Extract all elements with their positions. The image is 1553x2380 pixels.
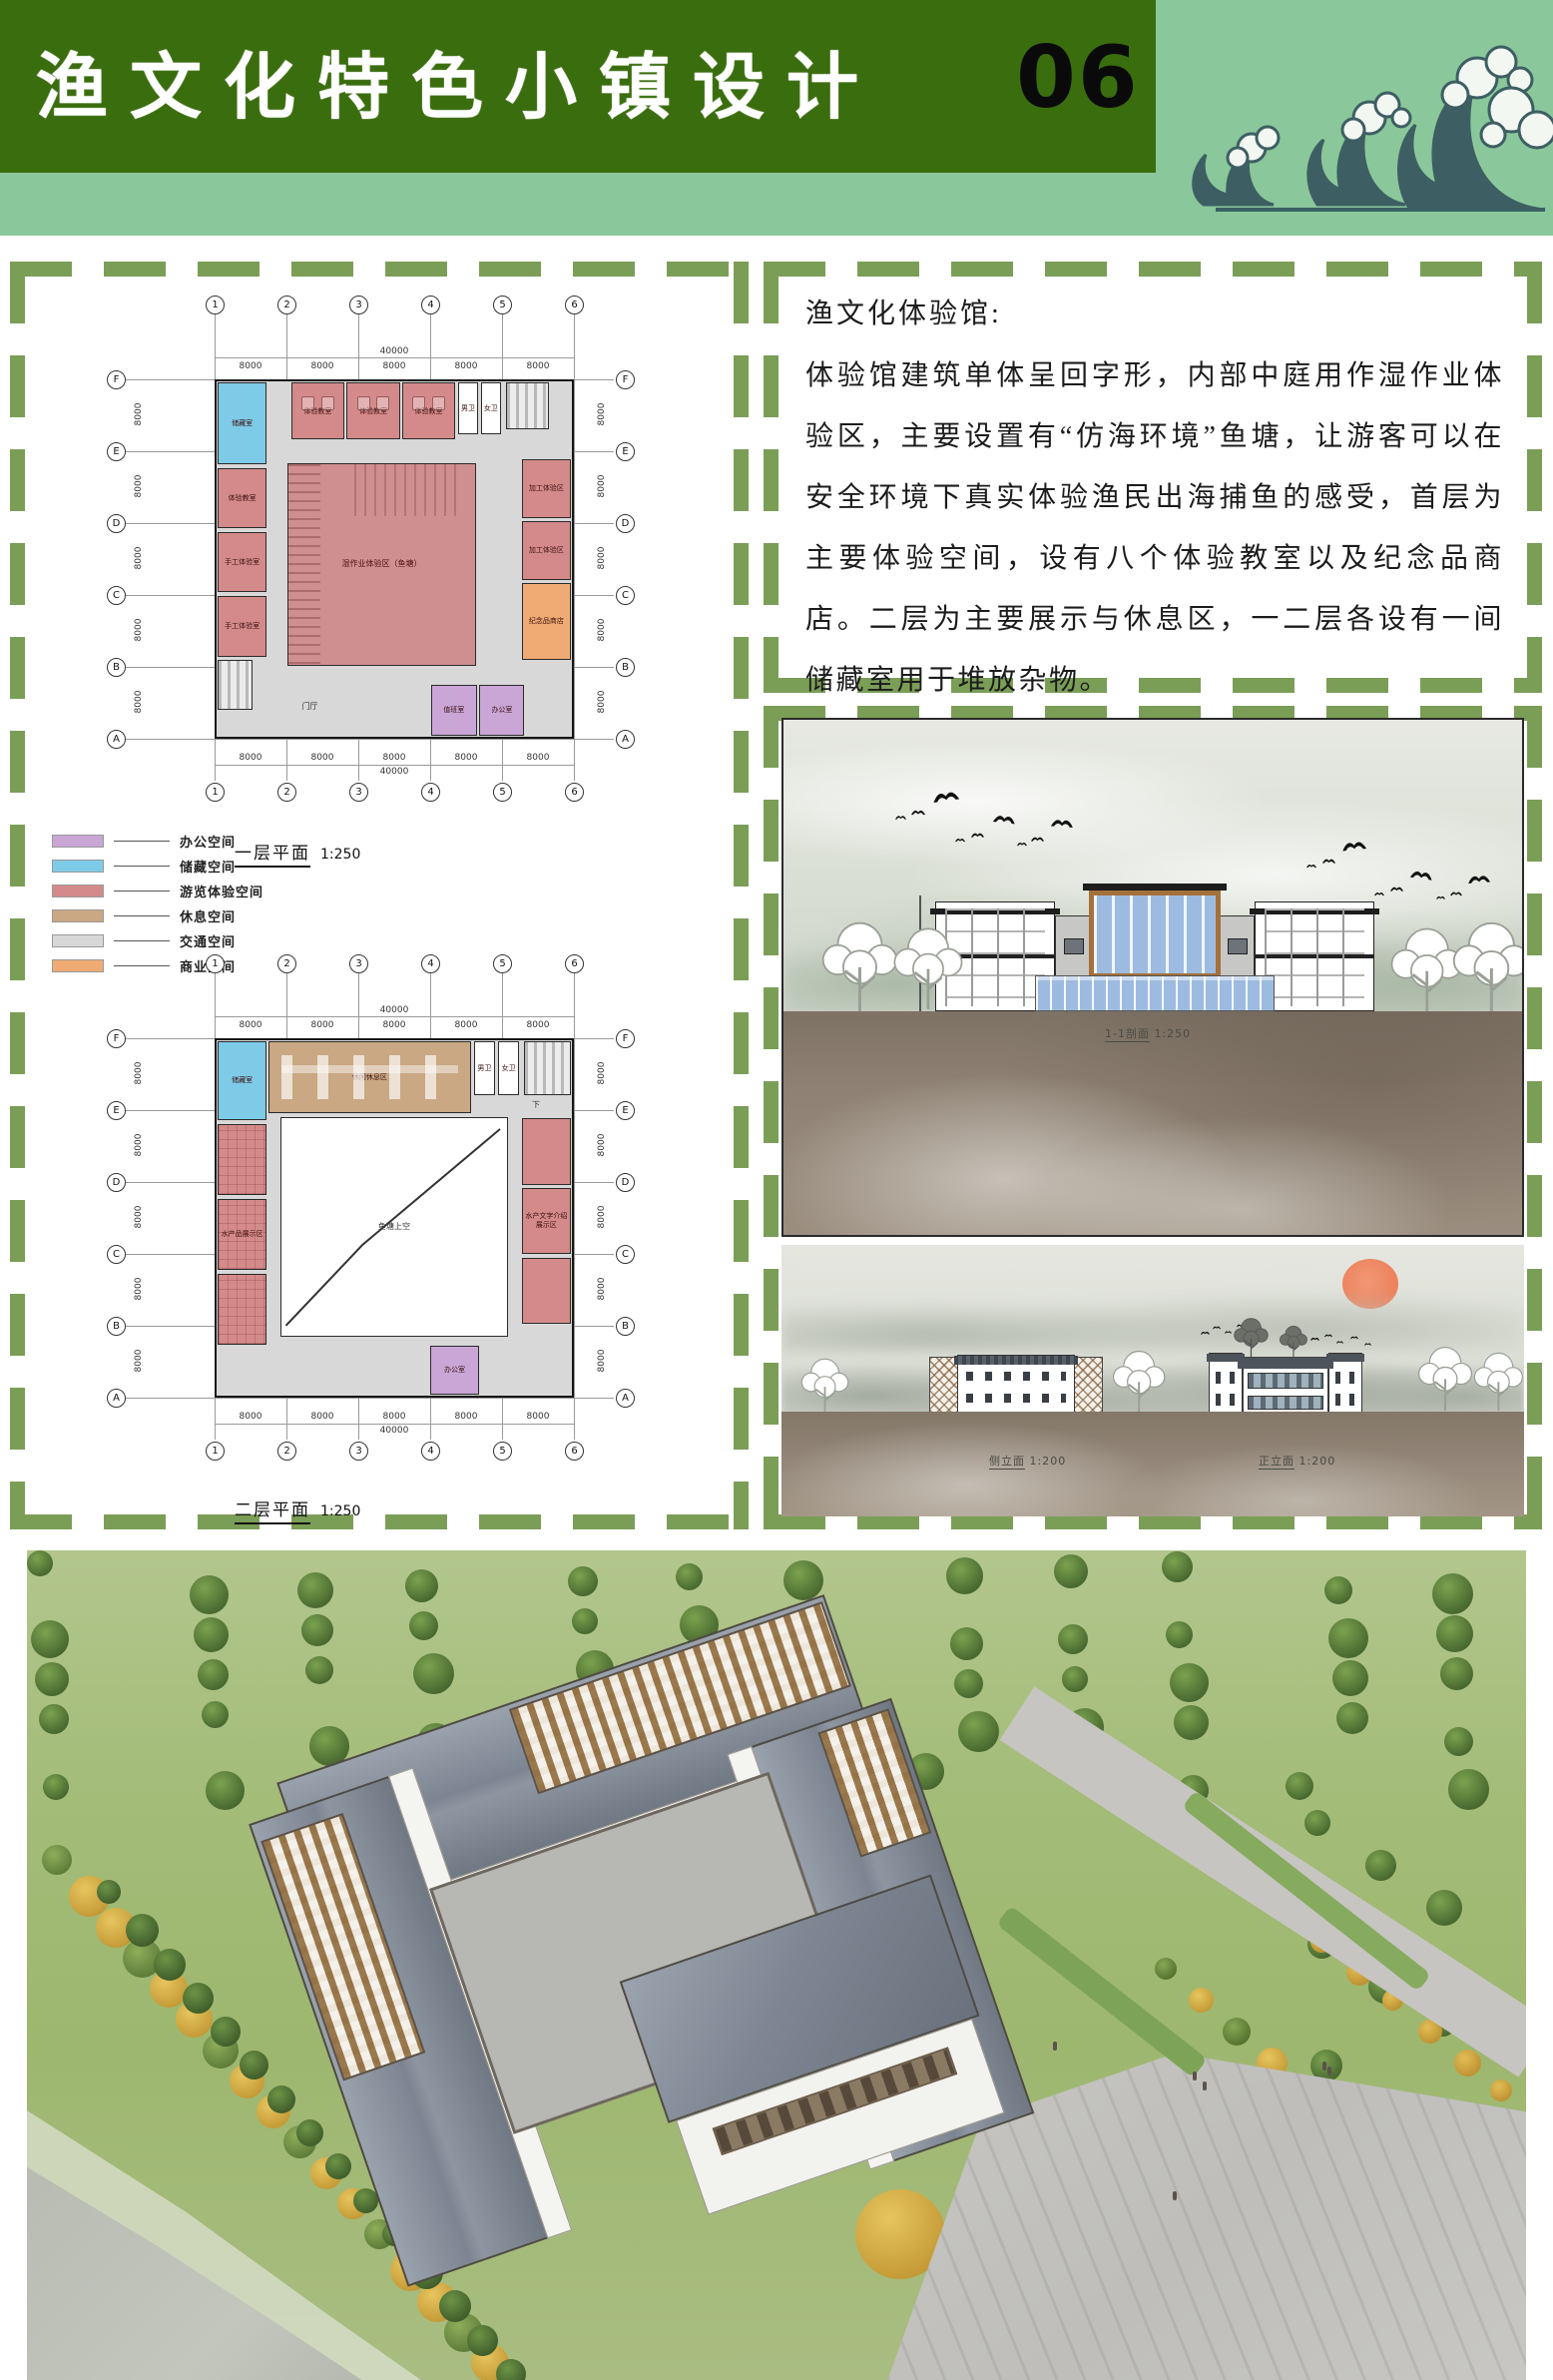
side-elevation-label: 侧立面 1:200: [989, 1453, 1066, 1469]
tree: [1365, 1850, 1396, 1881]
aerial-render: [27, 1550, 1526, 2380]
grid-bubble: 1: [206, 296, 225, 314]
dim-label: 8000: [597, 466, 607, 506]
legend-item: 办公空间: [52, 829, 263, 854]
tree: [676, 1563, 703, 1590]
dim-label: 8000: [134, 1197, 144, 1237]
tree: [1304, 1810, 1330, 1836]
first-floor-plan: 1180008000228000800033800080004480008000…: [65, 284, 684, 823]
second-floor-plan: 1180008000228000800033800080004480008000…: [65, 942, 684, 1482]
plan-room-鱼塘上空: 鱼塘上空: [280, 1117, 508, 1338]
tree: [1426, 1890, 1462, 1926]
legend-line: [114, 940, 170, 941]
plan-room-储藏室: 储藏室: [218, 1041, 265, 1119]
plan-room-男卫: 男卫: [458, 382, 478, 434]
plan-room-tour: [218, 1274, 265, 1345]
tree: [1286, 1772, 1313, 1800]
tree-sketch: [819, 919, 902, 1016]
header-banner: 渔文化特色小镇设计 06: [0, 0, 1156, 173]
dim-label: 8000: [286, 753, 358, 763]
tree: [35, 1662, 69, 1696]
legend-line: [114, 866, 170, 867]
bird-icon: [1322, 852, 1335, 870]
front-elevation-center: [1243, 1357, 1328, 1413]
tree: [1432, 1573, 1473, 1614]
tree: [97, 1880, 121, 1904]
dim-total: 40000: [215, 1005, 574, 1015]
bird-icon: [1324, 1325, 1332, 1343]
panel-border: [764, 1514, 1542, 1529]
tree: [958, 1711, 999, 1752]
bird-icon: [1310, 1329, 1319, 1347]
lower-glazing: [1035, 975, 1275, 1011]
elevation-label-text: 正立面: [1259, 1455, 1294, 1470]
legend-color-chip: [52, 885, 104, 897]
grid-bubble: D: [616, 1173, 635, 1192]
tree: [126, 1914, 159, 1947]
grid-bubble: 4: [421, 783, 440, 802]
room-label: 水产文字介绍展示区: [523, 1212, 569, 1230]
person: [1193, 2072, 1197, 2081]
side-elevation-wall: [957, 1355, 1075, 1413]
person: [1203, 2082, 1207, 2090]
dim-total: 40000: [215, 767, 574, 777]
dim-label: 8000: [502, 753, 574, 763]
room-label: 体验教室: [303, 407, 331, 416]
grid-bubble: D: [616, 514, 635, 533]
grid-bubble: 6: [565, 954, 584, 973]
tree: [27, 1550, 53, 1576]
building-footprint: 鱼塘上空储藏室休闲休息区男卫女卫水产品展示区水产文字介绍展示区办公室下: [215, 1038, 574, 1398]
poster-page: 渔文化特色小镇设计 06 118000800022800080003380008…: [0, 0, 1553, 2380]
dim-label: 8000: [134, 682, 144, 722]
description-heading: 渔文化体验馆:: [805, 292, 1504, 331]
plan-room-办公室: 办公室: [479, 685, 524, 736]
bird-icon: [992, 811, 1016, 832]
grid-line: [574, 972, 575, 1440]
bird-icon: [1225, 1321, 1232, 1339]
tree: [783, 1560, 823, 1600]
room-label: 水产品展示区: [222, 1230, 263, 1239]
plan-room-加工体验区: 加工体验区: [522, 521, 570, 579]
dim-line: [215, 1424, 574, 1425]
tree: [496, 2359, 526, 2380]
dim-label: 8000: [286, 1412, 358, 1422]
plan-room-休闲休息区: 休闲休息区: [268, 1041, 471, 1112]
lattice-gable: [929, 1357, 959, 1413]
dim-line: [215, 357, 574, 358]
dim-label: 8000: [134, 1341, 144, 1381]
legend-item: 游览体验空间: [52, 879, 263, 903]
dim-label: 8000: [502, 1412, 574, 1422]
dim-label: 8000: [502, 1020, 574, 1030]
bird-icon: [932, 786, 961, 811]
plan-scale: 1:250: [320, 847, 360, 863]
tree-sketch: [799, 1357, 851, 1420]
plan-room-女卫: 女卫: [498, 1041, 519, 1094]
bird-icon: [1364, 1333, 1371, 1351]
bird-icon: [1390, 880, 1403, 897]
panel-border: [10, 262, 749, 277]
tree: [1332, 1660, 1368, 1696]
plan-room-女卫: 女卫: [481, 382, 501, 434]
grid-bubble: E: [107, 1101, 126, 1120]
room-label: 加工体验区: [529, 546, 564, 555]
room-label: 休闲休息区: [352, 1073, 387, 1082]
grid-bubble: 5: [493, 296, 512, 314]
legend-item: 储藏空间: [52, 854, 263, 879]
floor-plans-panel: 1180008000228000800033800080004480008000…: [10, 262, 749, 1529]
grid-bubble: B: [616, 1317, 635, 1336]
tree: [568, 1566, 598, 1596]
dim-label: 8000: [597, 610, 607, 650]
bird-icon: [1031, 830, 1044, 848]
tree: [1336, 1702, 1368, 1734]
room-label: 加工体验区: [529, 484, 564, 493]
tree: [39, 1704, 69, 1734]
grid-bubble: A: [616, 1389, 635, 1408]
grid-bubble: F: [616, 1029, 635, 1048]
tree: [301, 1614, 333, 1646]
panel-border: [764, 262, 778, 693]
plan-room-水产文字介绍展示区: 水产文字介绍展示区: [522, 1188, 570, 1254]
tree: [1454, 2050, 1481, 2077]
panel-border: [10, 262, 25, 1529]
tree: [413, 1653, 454, 1694]
tree: [1062, 1666, 1088, 1692]
dim-label: 8000: [358, 361, 430, 371]
person: [1053, 2042, 1057, 2051]
room-label: 男卫: [477, 1064, 491, 1073]
person: [1327, 2067, 1331, 2076]
grid-bubble: 4: [421, 954, 440, 973]
grid-bubble: F: [616, 370, 635, 389]
dim-label: 8000: [597, 1197, 607, 1237]
grid-bubble: 5: [493, 1442, 512, 1461]
plan-room-体验教室: 体验教室: [218, 468, 265, 529]
tree: [1328, 1618, 1368, 1658]
grid-bubble: 1: [206, 954, 225, 973]
section-label-text: 1-1剖面: [1105, 1027, 1150, 1042]
grid-bubble: C: [107, 586, 126, 605]
tree: [194, 1617, 229, 1652]
grid-bubble: 6: [565, 1442, 584, 1461]
tree: [296, 2119, 323, 2146]
elevation-rendering: 侧立面 1:200 正立面 1:200: [781, 1245, 1524, 1516]
legend-color-chip: [52, 835, 104, 848]
tree: [206, 1771, 245, 1810]
bird-icon: [1213, 1317, 1221, 1335]
tree: [198, 1659, 229, 1690]
tree-sketch: [1450, 919, 1524, 1018]
dim-label: 8000: [215, 1412, 286, 1422]
bird-icon: [1409, 867, 1433, 889]
plan-room-男卫: 男卫: [474, 1041, 495, 1094]
grid-bubble: 4: [421, 1442, 440, 1461]
grid-bubble: D: [107, 514, 126, 533]
grid-bubble: 2: [277, 1442, 296, 1461]
grid-bubble: D: [107, 1173, 126, 1192]
plan-room-体验教室: 体验教室: [291, 382, 344, 439]
legend-line: [114, 915, 170, 916]
grid-bubble: 1: [206, 1442, 225, 1461]
dim-label: 8000: [502, 361, 574, 371]
tree: [240, 2051, 268, 2080]
plan-room-水产品展示区: 水产品展示区: [218, 1199, 265, 1270]
grid-bubble: 6: [565, 783, 584, 802]
panel-border: [734, 262, 749, 1529]
tree: [467, 2325, 498, 2356]
room-label: 女卫: [502, 1064, 516, 1073]
tree: [946, 1557, 983, 1594]
grid-bubble: C: [616, 586, 635, 605]
tree: [954, 1669, 983, 1698]
room-label: 体验教室: [359, 407, 387, 416]
panel-border: [764, 706, 778, 1529]
grid-bubble: E: [616, 1101, 635, 1120]
tree: [183, 1983, 214, 2014]
grid-bubble: B: [616, 658, 635, 677]
dim-label: 8000: [358, 753, 430, 763]
tree: [31, 1620, 69, 1658]
tree: [190, 1575, 229, 1614]
dim-label: 8000: [286, 1020, 358, 1030]
panel-border: [10, 1514, 749, 1529]
room-label: 储藏室: [232, 1076, 253, 1085]
grid-bubble: 6: [565, 296, 584, 314]
grid-bubble: 3: [349, 783, 368, 802]
legend-label: 办公空间: [180, 832, 236, 851]
front-elevation-label: 正立面 1:200: [1259, 1453, 1335, 1469]
elevations-panel: 1-1剖面 1:250: [764, 706, 1542, 1529]
panel-border: [1527, 262, 1542, 693]
bird-icon: [1201, 1323, 1210, 1341]
center-roof: [1083, 884, 1227, 891]
plan-room-手工体验室: 手工体验室: [218, 596, 265, 657]
tree: [1436, 1615, 1473, 1652]
dim-label: 8000: [134, 1125, 144, 1165]
plan-room-tour: [218, 1124, 265, 1195]
tree: [1189, 1988, 1214, 2013]
bird-icon: [955, 830, 965, 848]
room-label: 办公室: [444, 1366, 465, 1375]
bird-icon: [1374, 884, 1384, 901]
dim-label: 8000: [134, 1053, 144, 1093]
grid-bubble: A: [107, 1389, 126, 1408]
tree: [1444, 1727, 1473, 1756]
tree: [325, 2153, 351, 2179]
plan-room-stair: [218, 660, 252, 710]
plan-room-加工体验区: 加工体验区: [522, 459, 570, 517]
tree: [1223, 2018, 1251, 2046]
room-label: 体验教室: [229, 494, 257, 503]
dim-label: 8000: [597, 1125, 607, 1165]
plan-room-stair: [506, 382, 549, 428]
lattice-gable: [1073, 1357, 1103, 1413]
room-label: 湿作业体验区（鱼塘）: [342, 559, 422, 569]
dim-label: 8000: [358, 1412, 430, 1422]
tree: [42, 1845, 72, 1875]
dim-label: 8000: [134, 1269, 144, 1309]
tree-sketch: [1472, 1351, 1524, 1416]
room-label: 办公室: [491, 706, 512, 715]
tree: [405, 1569, 438, 1602]
description-body: 体验馆建筑单体呈回字形，内部中庭用作湿作业体验区，主要设置有“仿海环境”鱼塘，让…: [805, 345, 1504, 711]
grid-bubble: F: [107, 370, 126, 389]
grid-line: [574, 313, 575, 781]
plan-annotation: 下: [532, 1099, 540, 1110]
tree: [1162, 1551, 1193, 1582]
plan-room-tour: [522, 1258, 570, 1324]
bird-icon: [1306, 856, 1316, 874]
grid-bubble: 3: [349, 954, 368, 973]
legend-color-chip: [52, 860, 104, 873]
bird-icon: [1350, 1327, 1358, 1345]
bird-icon: [1450, 884, 1462, 901]
tree: [1155, 1958, 1177, 1980]
bird-icon: [1436, 888, 1445, 905]
grid-bubble: 2: [277, 296, 296, 314]
front-elevation-tower: [1328, 1353, 1362, 1413]
plan-room-储藏室: 储藏室: [218, 382, 265, 464]
far-mountains: [781, 1293, 1524, 1353]
dim-label: 8000: [134, 394, 144, 434]
room-label: 纪念品商店: [529, 617, 564, 626]
tree: [267, 2085, 295, 2113]
panel-border: [1527, 706, 1542, 1529]
plan-room-体验教室: 体验教室: [402, 382, 455, 439]
grid-bubble: C: [616, 1245, 635, 1264]
dim-label: 8000: [134, 610, 144, 650]
elevation-label-scale: 1:200: [1299, 1455, 1336, 1468]
section-label: 1-1剖面 1:250: [1105, 1025, 1191, 1041]
grid-line: [125, 1398, 614, 1399]
bird-icon: [971, 826, 984, 844]
tree: [43, 1774, 69, 1800]
tree: [1166, 1621, 1193, 1648]
dim-label: 8000: [134, 538, 144, 578]
grid-bubble: 3: [349, 1442, 368, 1461]
panel-border: [764, 262, 1542, 277]
grid-line: [125, 739, 614, 740]
plan-room-stair: [524, 1041, 571, 1094]
tree: [1054, 1554, 1088, 1588]
dim-line: [215, 1016, 574, 1017]
legend-line: [114, 841, 170, 842]
plan-room-体验教室: 体验教室: [346, 382, 399, 439]
section-rendering: 1-1剖面 1:250: [781, 718, 1524, 1237]
room-label: 值班室: [443, 706, 464, 715]
dim-total: 40000: [215, 346, 574, 356]
tree: [1174, 1705, 1209, 1740]
grid-bubble: 4: [421, 296, 440, 314]
description-panel: 渔文化体验馆: 体验馆建筑单体呈回字形，内部中庭用作湿作业体验区，主要设置有“仿…: [764, 262, 1542, 693]
dim-label: 8000: [215, 361, 286, 371]
bird-icon: [1050, 815, 1073, 835]
dim-label: 8000: [430, 1020, 502, 1030]
legend-item: 休息空间: [52, 903, 263, 928]
dim-label: 8000: [430, 753, 502, 763]
bird-icon: [1336, 1331, 1343, 1349]
bird-icon: [895, 808, 906, 826]
room-label: 手工体验室: [225, 622, 259, 631]
tree: [1058, 1624, 1088, 1654]
grid-bubble: B: [107, 1317, 126, 1336]
legend-color-chip: [52, 909, 104, 922]
page-title: 渔文化特色小镇设计: [36, 28, 934, 133]
dim-label: 8000: [215, 753, 286, 763]
grid-bubble: 5: [493, 783, 512, 802]
grid-bubble: 2: [277, 954, 296, 973]
tree: [1170, 1663, 1209, 1702]
plan-room-办公室: 办公室: [430, 1346, 480, 1394]
room-label: 体验教室: [415, 407, 443, 416]
plan-title-text: 二层平面: [235, 1500, 310, 1524]
dim-total: 40000: [215, 1426, 574, 1436]
tree: [950, 1627, 983, 1660]
room-label: 手工体验室: [225, 558, 259, 567]
header-substrip: [0, 173, 1156, 236]
plan-room-tour: [522, 1118, 570, 1184]
dim-label: 8000: [597, 1341, 607, 1381]
wave-illustration: [1156, 0, 1553, 236]
room-label: 储藏室: [232, 419, 253, 428]
tree: [297, 1572, 333, 1608]
plan-room-值班室: 值班室: [431, 685, 477, 736]
tree-sketch: [1111, 1349, 1169, 1418]
dim-label: 8000: [597, 394, 607, 434]
legend-line: [114, 891, 170, 892]
grid-bubble: A: [616, 730, 635, 749]
tree-sketch: [891, 925, 967, 1014]
page-number: 06: [1016, 28, 1140, 128]
grid-bubble: A: [107, 730, 126, 749]
dim-label: 8000: [215, 1020, 286, 1030]
section-label-scale: 1:250: [1154, 1027, 1191, 1040]
dim-label: 8000: [430, 1412, 502, 1422]
bird-icon: [911, 804, 925, 822]
grid-bubble: C: [107, 1245, 126, 1264]
legend-label: 游览体验空间: [180, 882, 263, 900]
grid-bubble: B: [107, 658, 126, 677]
building-footprint: 湿作业体验区（鱼塘）储藏室体验教室体验教室体验教室男卫女卫体验教室手工体验室手工…: [215, 379, 574, 739]
dim-label: 8000: [597, 1269, 607, 1309]
bird-icon: [1341, 837, 1367, 859]
grid-bubble: 5: [493, 954, 512, 973]
dim-label: 8000: [358, 1020, 430, 1030]
wave-icon: [1156, 0, 1553, 236]
grid-bubble: 1: [206, 783, 225, 802]
legend-label: 休息空间: [180, 906, 236, 925]
grid-bubble: E: [107, 442, 126, 461]
grid-bubble: E: [616, 442, 635, 461]
grid-bubble: F: [107, 1029, 126, 1048]
tree: [1490, 2080, 1512, 2101]
person: [1173, 2191, 1177, 2200]
tree: [572, 1608, 598, 1634]
tree: [202, 1701, 229, 1728]
dim-label: 8000: [430, 361, 502, 371]
legend-label: 储藏空间: [180, 857, 236, 876]
plan-room-湿作业体验区（鱼塘）: 湿作业体验区（鱼塘）: [287, 463, 476, 666]
ground-texture: [783, 1011, 1522, 1235]
tree-sketch: [1416, 1345, 1475, 1416]
dim-label: 8000: [597, 538, 607, 578]
room-label: 男卫: [461, 404, 475, 413]
grid-bubble: 2: [277, 783, 296, 802]
bird-icon: [1017, 834, 1027, 852]
second-floor-plan-title: 二层平面1:250: [235, 1495, 360, 1520]
